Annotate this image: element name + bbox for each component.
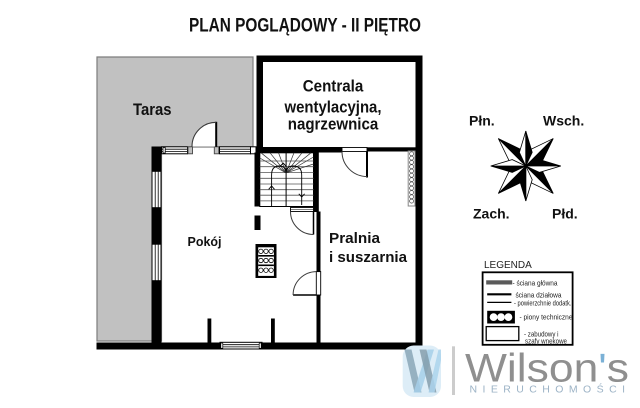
svg-text:Zach.: Zach. bbox=[473, 206, 510, 222]
svg-text:- ściana główna: - ściana główna bbox=[513, 278, 559, 287]
svg-text:Wsch.: Wsch. bbox=[543, 113, 584, 129]
svg-text:Taras: Taras bbox=[133, 101, 172, 119]
svg-text:Centrala: Centrala bbox=[303, 77, 364, 96]
svg-text:NIERUCHOMOŚCI: NIERUCHOMOŚCI bbox=[470, 383, 626, 396]
svg-text:Płd.: Płd. bbox=[552, 206, 578, 222]
svg-text:- piony techniczne: - piony techniczne bbox=[520, 312, 573, 321]
svg-text:Płn.: Płn. bbox=[469, 113, 495, 129]
svg-text:- powierzchnie dodatk.: - powierzchnie dodatk. bbox=[514, 298, 572, 307]
svg-text:i suszarnia: i suszarnia bbox=[329, 249, 408, 266]
svg-text:Pokój: Pokój bbox=[188, 234, 222, 249]
svg-text:nagrzewnica: nagrzewnica bbox=[288, 115, 379, 134]
svg-text:szafy wnękowe: szafy wnękowe bbox=[525, 337, 567, 346]
svg-text:Pralnia: Pralnia bbox=[329, 230, 381, 247]
svg-text:PLAN POGLĄDOWY - II PIĘTRO: PLAN POGLĄDOWY - II PIĘTRO bbox=[189, 16, 421, 37]
svg-text:LEGENDA: LEGENDA bbox=[484, 260, 532, 271]
